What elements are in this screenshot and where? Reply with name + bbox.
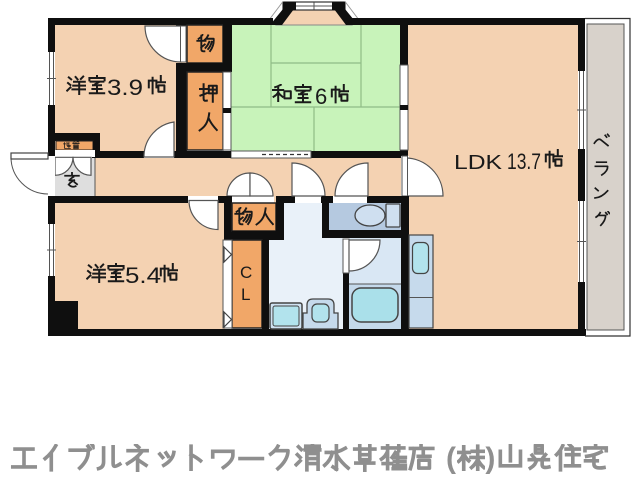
svg-text:LDK: LDK	[454, 152, 503, 174]
svg-text:6: 6	[315, 84, 327, 109]
svg-text:C: C	[240, 263, 252, 282]
svg-text:13.7: 13.7	[507, 149, 541, 174]
svg-text:(: (	[446, 442, 456, 475]
svg-text:3.9: 3.9	[107, 75, 143, 100]
svg-text:L: L	[241, 285, 250, 304]
svg-text:): )	[485, 442, 495, 475]
svg-text:5.4: 5.4	[125, 263, 161, 288]
